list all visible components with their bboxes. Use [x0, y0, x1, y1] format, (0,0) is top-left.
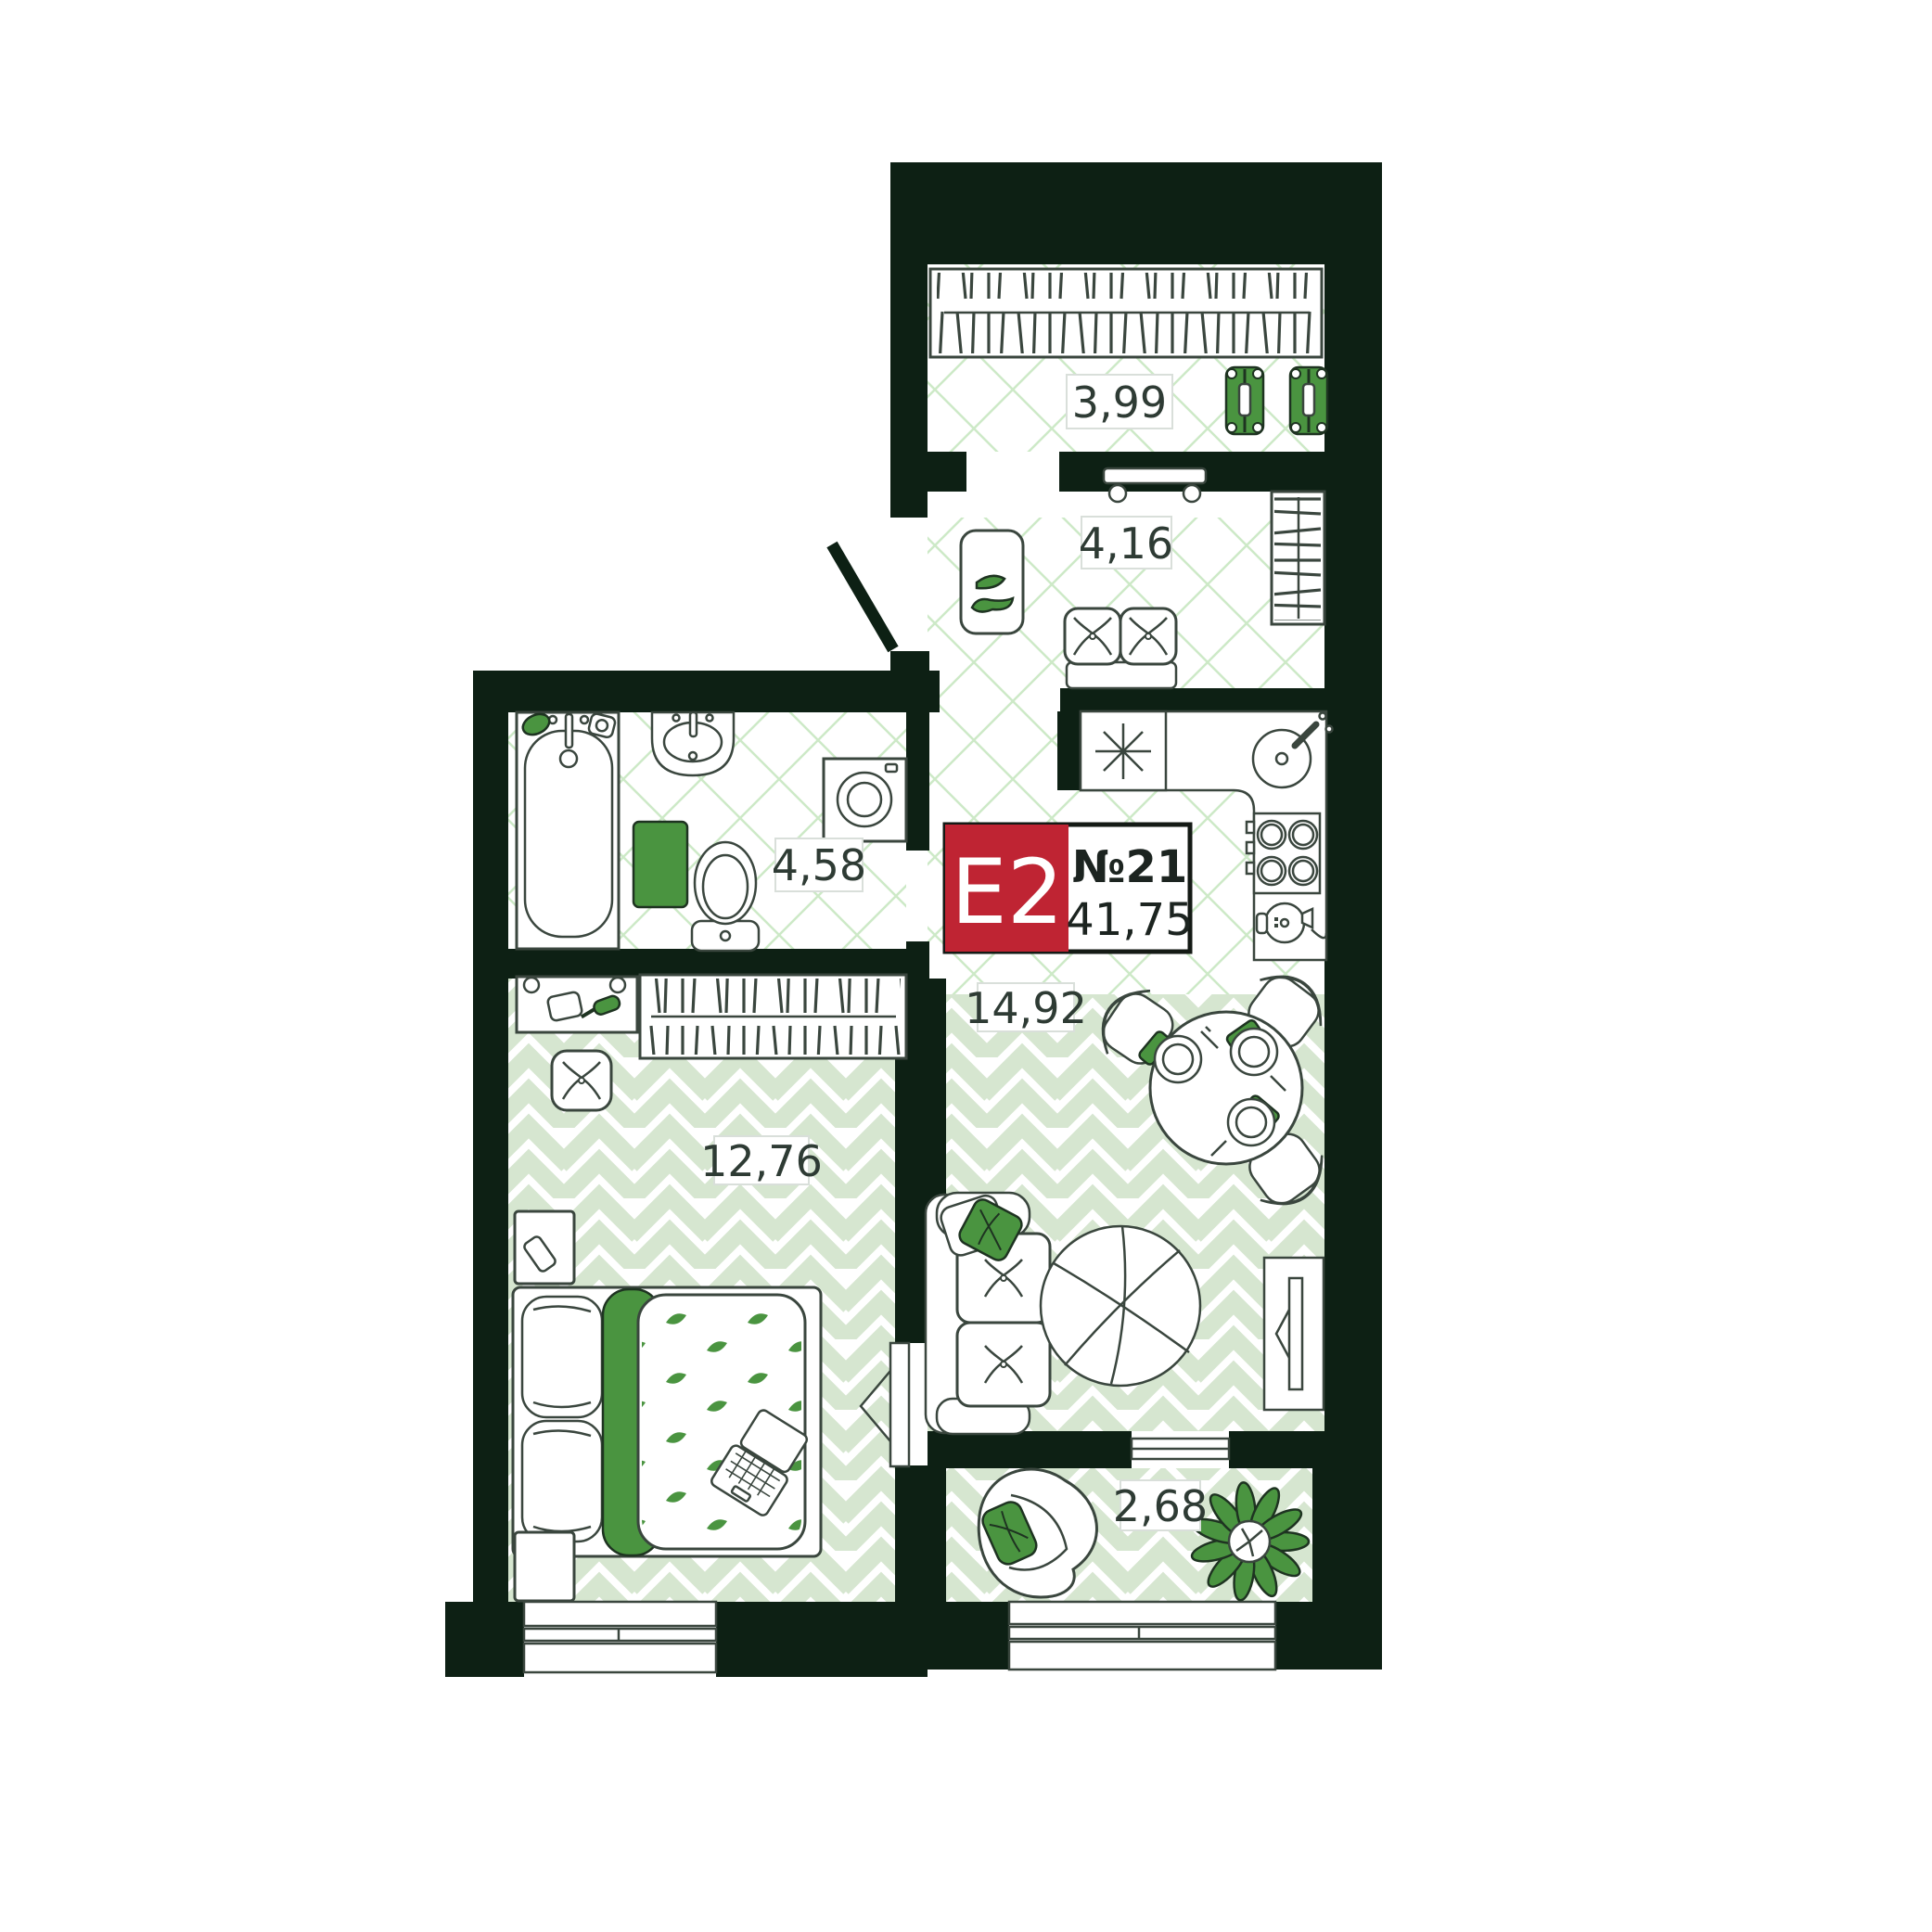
tv-stand-icon	[1264, 1258, 1324, 1410]
suitcase-icon	[1290, 367, 1327, 434]
nightstand-icon	[515, 1532, 574, 1601]
unit-badge: E2 №21 41,75	[945, 825, 1194, 952]
svg-text:12,76: 12,76	[700, 1136, 823, 1186]
svg-text:2,68: 2,68	[1113, 1481, 1208, 1531]
bathtub-icon	[517, 710, 619, 949]
closet-area-label: 3,99	[1067, 375, 1172, 429]
balcony-area-label: 2,68	[1113, 1480, 1208, 1531]
pouf-icon	[552, 1051, 611, 1110]
hallway-area-label: 4,16	[1079, 517, 1173, 569]
balcony-window	[1009, 1602, 1275, 1670]
vanity-table-icon	[517, 977, 637, 1032]
nightstand-icon	[515, 1211, 574, 1284]
entrance-door-icon	[832, 544, 893, 649]
stove-4-burner-icon	[1247, 813, 1320, 893]
bedroom-area-label: 12,76	[700, 1136, 823, 1186]
suitcase-icon	[1226, 367, 1263, 434]
living-area-label: 14,92	[965, 983, 1087, 1033]
balcony-door	[1132, 1439, 1229, 1459]
bedroom-wardrobe-icon	[640, 975, 906, 1058]
unit-number: №21	[1072, 841, 1188, 893]
bath-mat-icon	[633, 822, 687, 907]
bench-pouf-icon	[1065, 608, 1176, 688]
floor-plan: 3,99 4,16 4,58 14,92 12,76 2,68 E2 №21 4…	[0, 0, 1932, 1932]
total-area: 41,75	[1066, 894, 1193, 946]
washing-machine-icon	[824, 759, 906, 841]
hob-icon	[1081, 711, 1166, 790]
svg-text:3,99: 3,99	[1072, 377, 1167, 428]
doormat-shoes-icon	[961, 531, 1023, 633]
bedroom-window	[524, 1602, 716, 1672]
side-wardrobe-icon	[1272, 492, 1324, 624]
layout-code: E2	[951, 840, 1064, 944]
svg-text:14,92: 14,92	[965, 983, 1087, 1033]
wash-basin-icon	[652, 712, 734, 775]
svg-text:4,58: 4,58	[772, 840, 866, 890]
toilet-icon	[692, 842, 759, 951]
double-bed-icon	[513, 1287, 821, 1556]
round-rug-icon	[1041, 1226, 1200, 1386]
svg-text:4,16: 4,16	[1079, 518, 1173, 569]
bathroom-area-label: 4,58	[772, 838, 866, 891]
hanger-rail-icon	[930, 269, 1322, 357]
